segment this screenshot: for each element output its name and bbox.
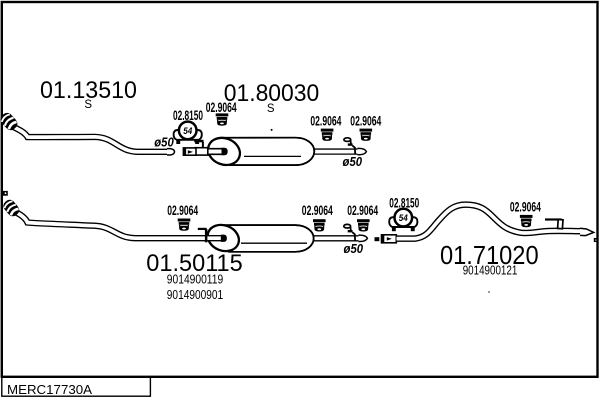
svg-text:ø50: ø50	[154, 134, 174, 149]
svg-text:02.9064: 02.9064	[350, 114, 381, 129]
svg-text:S: S	[84, 99, 92, 111]
svg-text:02.9064: 02.9064	[510, 199, 541, 214]
svg-text:02.9064: 02.9064	[206, 100, 237, 115]
svg-text:02.9064: 02.9064	[347, 203, 378, 218]
svg-text:02.9064: 02.9064	[167, 203, 198, 218]
svg-text:S: S	[267, 103, 275, 115]
svg-text:9014900121: 9014900121	[463, 264, 518, 278]
svg-text:ø50: ø50	[343, 154, 363, 169]
svg-text:02.9064: 02.9064	[310, 114, 341, 129]
svg-text:02.8150: 02.8150	[389, 195, 419, 210]
svg-text:ø50: ø50	[344, 241, 364, 256]
svg-text:9014900119: 9014900119	[167, 273, 223, 287]
svg-text:02.8150: 02.8150	[173, 108, 203, 123]
svg-text:02.9064: 02.9064	[302, 203, 333, 218]
svg-text:MERC17730A: MERC17730A	[7, 383, 93, 397]
svg-text:9014900901: 9014900901	[167, 288, 223, 302]
